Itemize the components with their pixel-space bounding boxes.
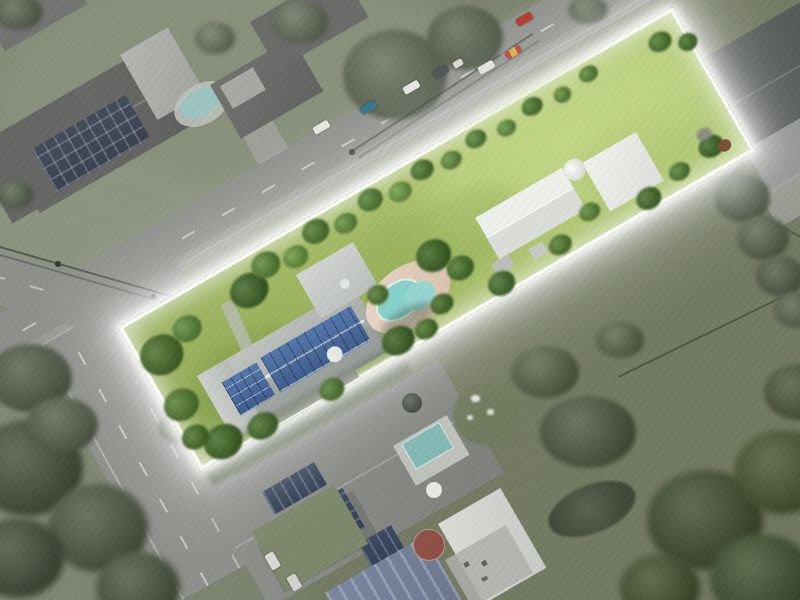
aerial-property-photo <box>0 0 800 600</box>
garden-tree <box>545 230 576 259</box>
roof-ridge <box>727 27 800 109</box>
garden-pond-bed <box>453 383 519 445</box>
power-pole <box>55 261 61 267</box>
white-flower-cluster <box>467 415 473 420</box>
white-flower-cluster <box>471 395 480 402</box>
tree-cluster-southwest <box>26 397 98 453</box>
palm-tree <box>645 27 676 56</box>
palm-tree <box>353 184 387 216</box>
outbuilding-small <box>528 242 548 260</box>
paddock-tree <box>596 322 644 358</box>
patio-furniture <box>463 561 470 568</box>
palm-tree <box>385 177 416 206</box>
power-pole <box>349 149 355 155</box>
round-water-tank <box>402 393 422 413</box>
white-flower-cluster <box>487 409 494 415</box>
garden-tree <box>665 158 693 185</box>
tree <box>195 22 235 54</box>
paddock-tree <box>540 396 636 468</box>
power-pole <box>151 294 156 299</box>
patio-furniture <box>481 575 488 581</box>
palm-tree <box>330 209 361 238</box>
neighbor-red-round-deck <box>413 529 445 561</box>
neighbor-dome-white <box>426 482 442 498</box>
tree <box>272 0 328 44</box>
paddock-tree <box>511 346 579 398</box>
palm-tree <box>298 214 334 249</box>
neighbor-pool-northwest-lobe <box>180 102 200 118</box>
tree-band-east <box>737 216 789 260</box>
palm-tree <box>407 155 438 184</box>
tree-band-east <box>714 174 770 222</box>
patio-furniture <box>481 560 488 567</box>
tree-band-east <box>756 256 800 296</box>
